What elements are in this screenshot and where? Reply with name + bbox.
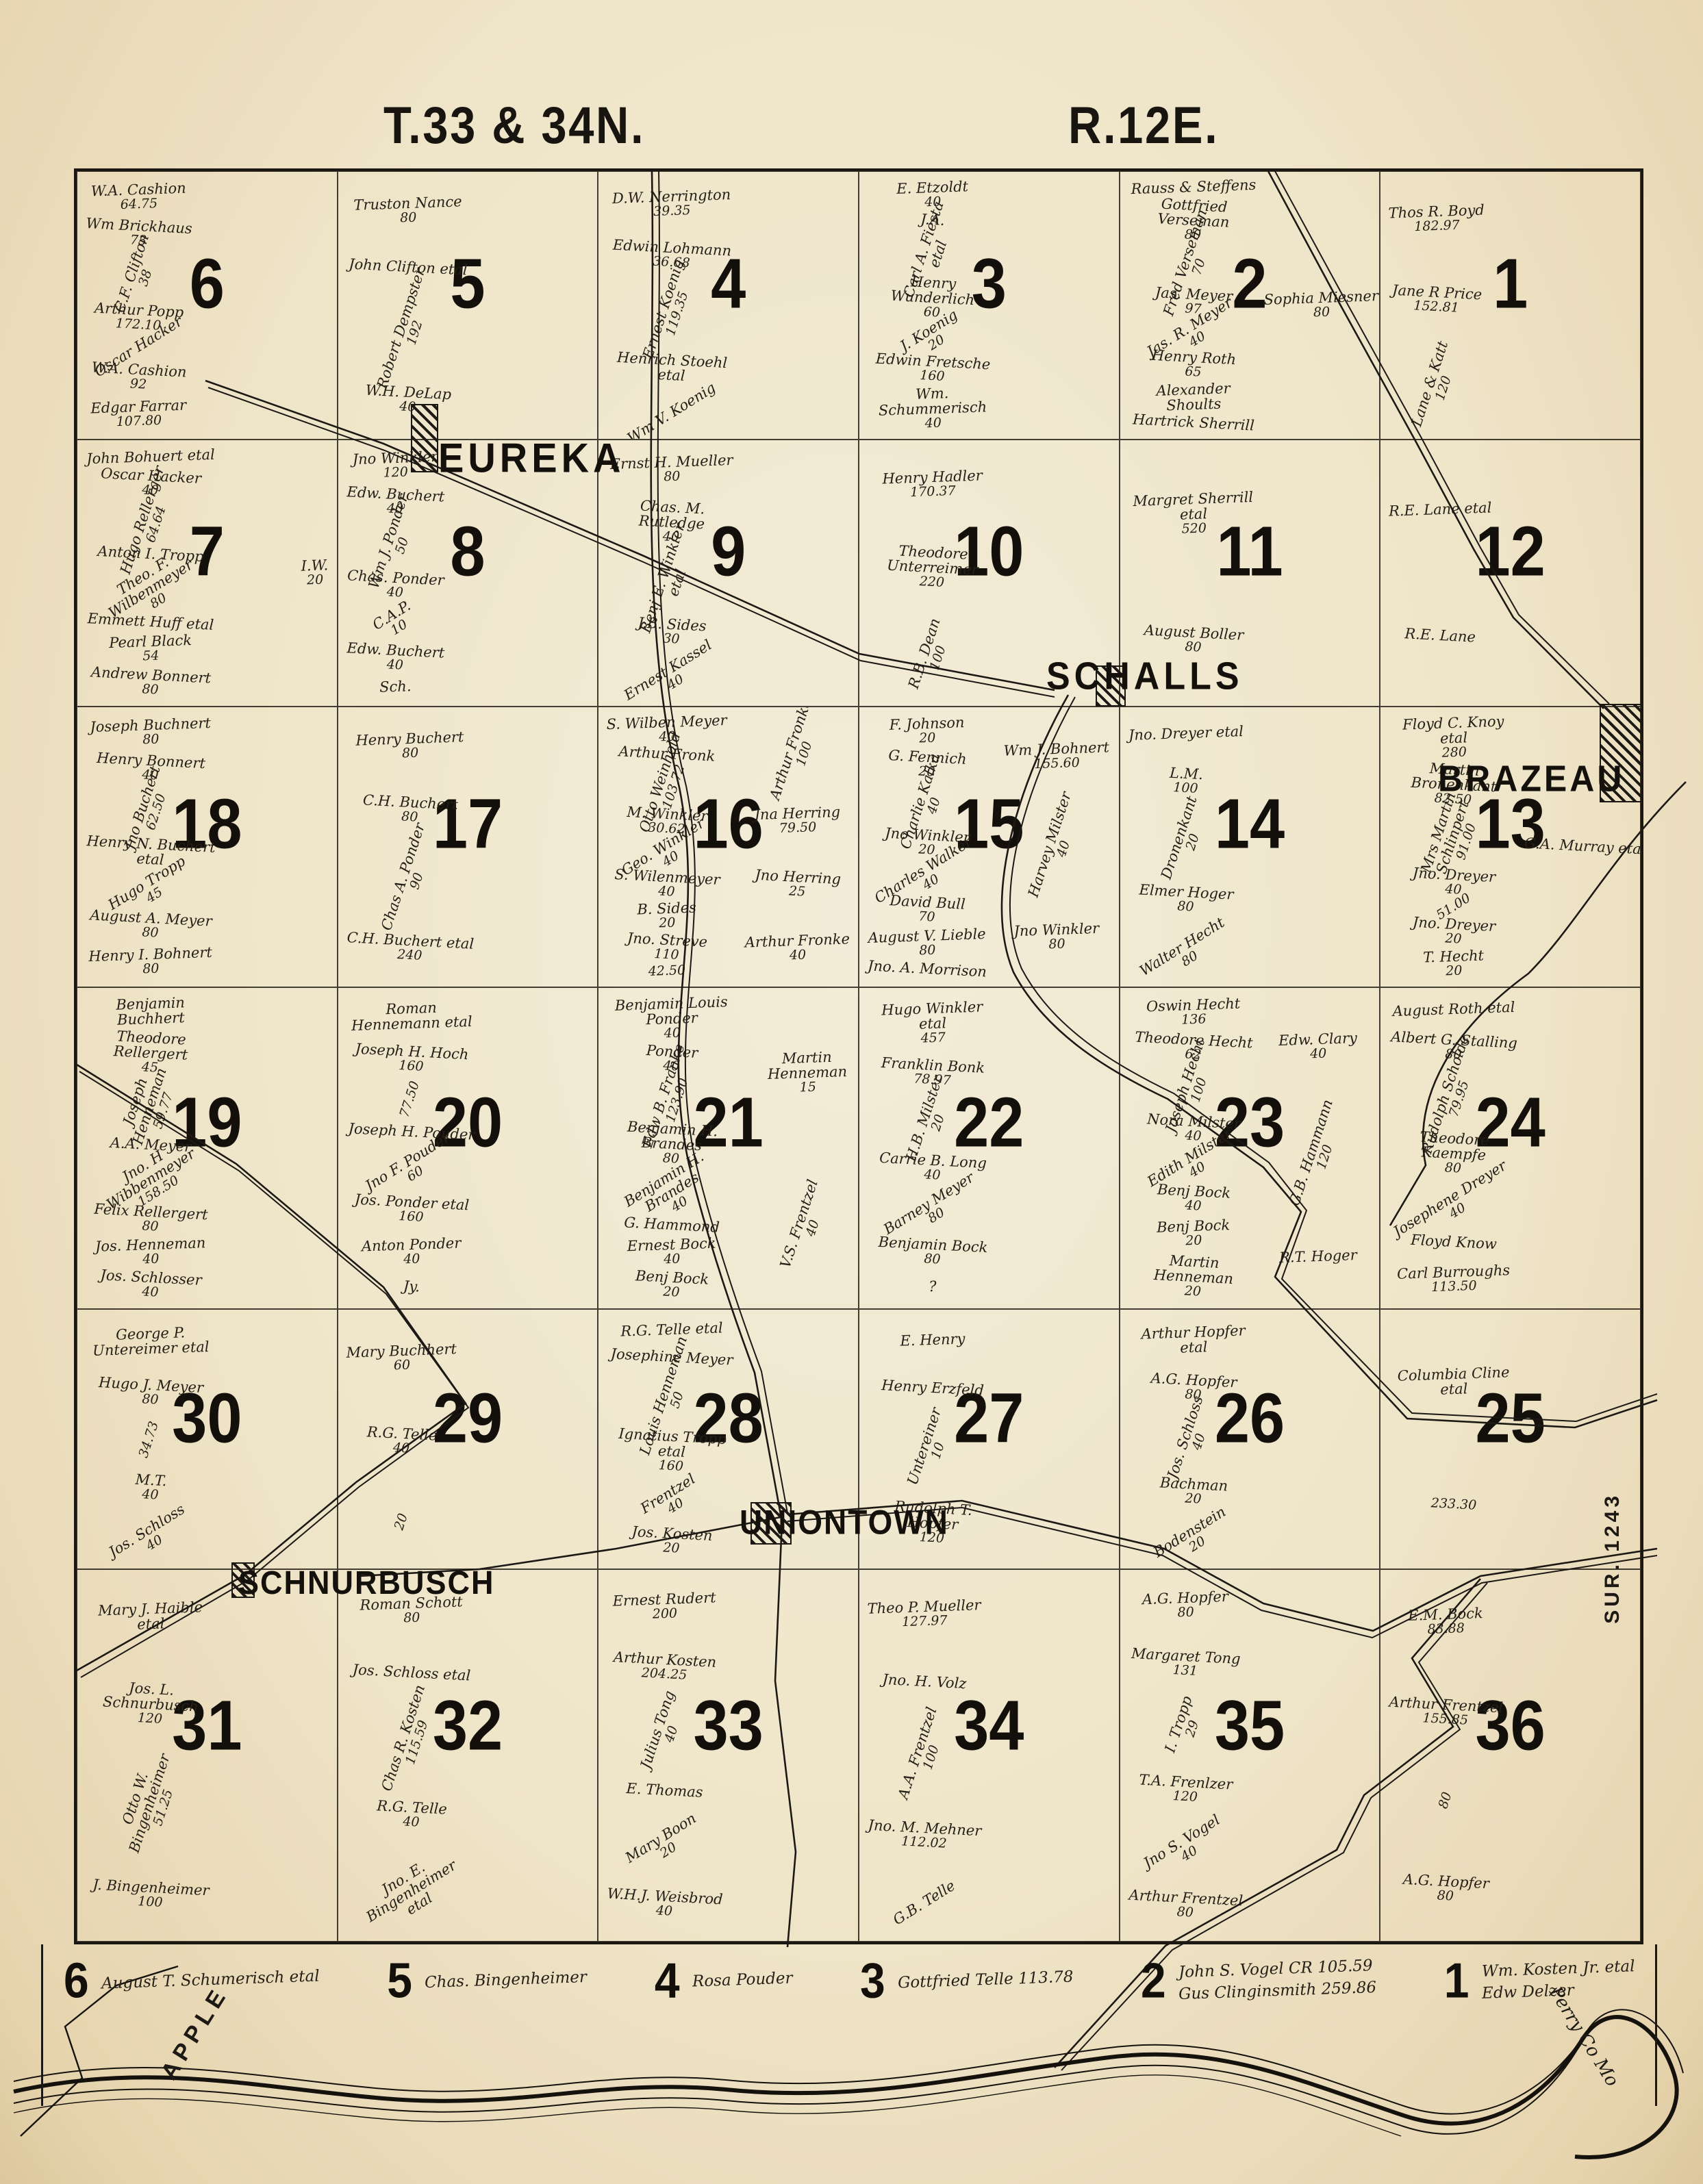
parcel-owner: Margret Sherrill etal: [1133, 489, 1253, 523]
bottom-section-4: 4Rosa Pouder: [655, 1954, 792, 2006]
parcel-label: George P. Untereimer etal: [85, 1325, 216, 1359]
parcel-label: D.W. Nerrington39.35: [607, 188, 737, 220]
parcel-label: Jos. Schloss40: [88, 1490, 213, 1569]
section-cell-31: 31Mary J. Haible etalJos. L. Schnurbusch…: [77, 1569, 338, 1942]
parcel-list: Benjamin BuchhertTheodore Rellergert45Jo…: [77, 988, 337, 1308]
parcel-acres: 110: [606, 945, 727, 965]
bottom-strip: 6August T. Schumerisch etal5Chas. Bingen…: [41, 1944, 1657, 2106]
parcel-list: R.E. Lane etalR.E. Lane: [1380, 440, 1640, 706]
parcel-label: W.A. Cashion92: [85, 360, 192, 394]
section-cell-19: 19Benjamin BuchhertTheodore Rellergert45…: [77, 987, 338, 1309]
parcel-owner: John Clifton etal: [348, 256, 467, 279]
parcel-owner: Jno. H. Volz: [882, 1671, 967, 1692]
parcel-label: Untereiner10: [898, 1382, 965, 1515]
section-cell-24: 24August Roth etalAlbert G. Stalling80Ru…: [1380, 987, 1641, 1309]
parcel-label: 20: [377, 1466, 425, 1569]
section-cell-9: 9Ernst H. Mueller80Chas. M. Rutledge40Be…: [598, 440, 859, 707]
parcel-label: Columbia Cline etal: [1389, 1364, 1519, 1399]
town-label-brazeau: BRAZEAU: [1438, 757, 1624, 800]
bottom-section-number: 3: [860, 1951, 885, 2009]
parcel-label: C.H. Buchert etal240: [346, 930, 475, 965]
parcel-acres: 20: [377, 1466, 425, 1569]
parcel-list: Jno. Dreyer etalL.M.100Dronenkant20Elmer…: [1120, 707, 1380, 987]
parcel-owner: R.T. Hoger: [1278, 1247, 1357, 1266]
parcel-acres: 83.88: [1389, 1621, 1503, 1638]
parcel-owner: Ignatius Tropp etal: [618, 1425, 727, 1460]
parcel-list: Rauss & SteffensGottfried Verseman80Fred…: [1120, 172, 1380, 439]
bottom-name-list: John S. Vogel CR 105.59Gus Clinginsmith …: [1178, 1960, 1376, 2000]
parcel-label: G.B. Hammann120: [1287, 1098, 1349, 1212]
bottom-parcel-label: Chas. Bingenheimer: [425, 1968, 588, 1992]
parcel-list: John Bohuert etalOscar Hacker40Hugo Rell…: [77, 440, 337, 706]
section-cell-2: 2Rauss & SteffensGottfried Verseman80Fre…: [1120, 171, 1380, 440]
parcel-owner: M.T.: [135, 1471, 167, 1488]
parcel-label: Jna Herring79.50: [744, 804, 850, 837]
bottom-section-number: 6: [64, 1951, 89, 2009]
bottom-parcel-label: Gottfried Telle 113.78: [897, 1968, 1073, 1992]
parcel-label: August Roth etal: [1389, 1000, 1519, 1019]
parcel-label: Jos. Ponder etal160: [346, 1192, 477, 1227]
parcel-list: Truston Nance80John Clifton etalRobert D…: [338, 172, 598, 439]
parcel-list: Mary J. Haible etalJos. L. Schnurbusch12…: [77, 1570, 337, 1941]
parcel-label: Jno. Streve110: [606, 930, 728, 965]
sections-grid: 6W.A. Cashion64.75Wm Brickhaus73C.F. Cli…: [77, 171, 1641, 1942]
section-cell-18: 18Joseph Buchnert80Henry Bonnert40Jno Bu…: [77, 707, 338, 987]
parcel-label: G.B. Telle: [872, 1867, 976, 1940]
parcel-label: Jane R Price152.81: [1388, 283, 1485, 317]
parcel-label: Hugo Winkler etal457: [867, 1000, 998, 1047]
section-cell-12: 12R.E. Lane etalR.E. Lane: [1380, 440, 1641, 707]
bottom-parcel-label: John S. Vogel CR 105.59: [1178, 1957, 1376, 1981]
section-cell-35: 35A.G. Hopfer80Margaret Tong131I. Tropp2…: [1120, 1569, 1380, 1942]
parcel-label: Floyd C. Knoy etal280: [1388, 713, 1519, 761]
parcel-label: Jno. Dreyer etal: [1128, 724, 1244, 744]
parcel-label: August A. Meyer80: [85, 908, 216, 943]
parcel-label: V.S. Frentzel40: [772, 1160, 840, 1293]
section-cell-33: 33Ernest Rudert200Arthur Kosten204.25Jul…: [598, 1569, 859, 1942]
parcel-label: E.M. Bock83.88: [1389, 1605, 1504, 1638]
town-label-uniontown: UNIONTOWN: [740, 1502, 949, 1542]
parcel-acres: 65: [1128, 362, 1259, 383]
parcel-owner: G.A. Murray etal: [1524, 835, 1641, 857]
parcel-list: George P. Untereimer etalHugo J. Meyer80…: [77, 1310, 337, 1569]
section-cell-26: 26Arthur Hopfer etalA.G. Hopfer80Jos. Sc…: [1120, 1309, 1380, 1569]
parcel-acres: 40: [607, 1250, 737, 1268]
parcel-label: Carl Burroughs113.50: [1389, 1263, 1519, 1296]
parcel-owner: Jno. E. Bingenheimer etal: [363, 1857, 459, 1925]
parcel-label: I. Tropp29: [1154, 1666, 1217, 1786]
parcel-owner: Roman Hennemann etal: [351, 1000, 472, 1034]
bottom-section-5: 5Chas. Bingenheimer: [387, 1954, 587, 2006]
parcel-owner: Benjamin Buchhert: [116, 994, 185, 1028]
parcel-label: Benj Bock40: [1128, 1181, 1259, 1216]
section-cell-32: 32Roman Schott80Jos. Schloss etalChas R.…: [338, 1569, 598, 1942]
parcel-owner: Alexander Shoults: [1156, 380, 1231, 414]
parcel-label: David Bull70: [867, 892, 987, 927]
bottom-section-number: 2: [1141, 1951, 1166, 2009]
parcel-list: Thos R. Boyd182.97Jane R Price152.81Lane…: [1380, 172, 1640, 439]
parcel-list: A.G. Hopfer80Margaret Tong131I. Tropp29T…: [1120, 1570, 1380, 1941]
bottom-name-list: Chas. Bingenheimer: [425, 1971, 587, 1989]
parcel-owner: Jos. Schloss etal: [352, 1661, 471, 1684]
parcel-acres: 42.50: [607, 963, 728, 980]
bottom-section-number: 4: [655, 1951, 680, 2009]
parcel-list: W.A. Cashion64.75Wm Brickhaus73C.F. Clif…: [77, 172, 337, 439]
parcel-label: W.H. DeLap40: [346, 383, 470, 418]
parcel-owner: Theodore Kaempfe: [1420, 1129, 1489, 1164]
parcel-label: B. Sides20: [607, 900, 728, 932]
parcel-owner: Mary J. Haible etal: [98, 1599, 203, 1632]
parcel-label: Jno. A. Morrison: [868, 959, 987, 980]
map-frame: 6W.A. Cashion64.75Wm Brickhaus73C.F. Cli…: [74, 168, 1643, 1944]
parcel-label: Harvey Milster40: [1026, 790, 1087, 903]
parcel-acres: 70: [867, 907, 987, 927]
parcel-acres: 20: [1388, 929, 1519, 950]
section-cell-14: 14Jno. Dreyer etalL.M.100Dronenkant20Elm…: [1120, 707, 1380, 987]
parcel-owner: Benjamin Louis Ponder: [615, 993, 729, 1028]
parcel-label: C.H. Buchert80: [346, 792, 475, 827]
parcel-label: Rauss & Steffens: [1128, 178, 1259, 197]
parcel-label: R.B. Dean100: [898, 589, 965, 707]
parcel-owner: R.G. Telle etal: [620, 1320, 723, 1340]
parcel-list: Arthur Hopfer etalA.G. Hopfer80Jos. Schl…: [1120, 1310, 1380, 1569]
parcel-acres: 20: [868, 729, 987, 747]
parcel-label: Jos. L. Schnurbusch120: [84, 1679, 216, 1729]
parcel-label: Hugo J. Meyer80: [85, 1375, 216, 1410]
parcel-list: E. Etzoldt40J.A.Carl A. Fiesta etalHenry…: [859, 172, 1119, 439]
parcel-label: Theodore Unterreimer220: [866, 542, 998, 592]
parcel-acres: 20: [606, 1538, 737, 1559]
parcel-label: Jno. E. Bingenheimer etal: [344, 1838, 479, 1942]
parcel-acres: 20: [1128, 1232, 1259, 1250]
title-township: T.33 & 34N.: [383, 96, 645, 155]
parcel-label: I.W.20: [301, 559, 329, 588]
section-cell-22: 22Hugo Winkler etal457Franklin Bonk78.97…: [859, 987, 1120, 1309]
bottom-section-2: 2John S. Vogel CR 105.59Gus Clinginsmith…: [1141, 1954, 1376, 2006]
town-label-schnurbusch: SCHNURBUSCH: [238, 1564, 495, 1602]
bottom-section-3: 3Gottfried Telle 113.78: [860, 1954, 1073, 2006]
parcel-label: Pearl Black54: [85, 633, 216, 665]
section-cell-20: 20Roman Hennemann etalJoseph H. Hoch1607…: [338, 987, 598, 1309]
parcel-owner: Wm. Schummerisch: [878, 385, 987, 418]
parcel-acres: 20: [1389, 962, 1519, 980]
parcel-label: Ernest Bock40: [607, 1235, 737, 1268]
parcel-label: W.A. Cashion64.75: [85, 181, 192, 213]
parcel-label: T. Hecht20: [1389, 947, 1519, 980]
parcel-label: Benjamin Buchhert: [85, 995, 216, 1029]
parcel-owner: R.E. Lane etal: [1389, 499, 1492, 519]
title-range: R.12E.: [1068, 96, 1219, 155]
parcel-label: Truston Nance80: [346, 194, 470, 227]
parcel-label: A.G. Hopfer80: [1128, 1589, 1243, 1621]
parcel-label: Mary J. Haible etal: [85, 1599, 216, 1634]
parcel-owner: Jno. Dreyer etal: [1128, 723, 1244, 744]
parcel-label: Arthur Frentzel155.85: [1388, 1695, 1504, 1729]
parcel-owner: Hartrick Sherrill: [1132, 411, 1254, 433]
parcel-acres: 20: [1139, 1505, 1257, 1569]
parcel-label: W.H.J. Weisbrod40: [606, 1887, 723, 1921]
parcel-label: August Boller80: [1128, 622, 1259, 657]
parcel-label: R.G. Telle40: [346, 1797, 477, 1832]
parcel-list: Ernst H. Mueller80Chas. M. Rutledge40Ben…: [598, 440, 858, 706]
parcel-label: Jos. Schloss etal: [346, 1662, 477, 1684]
parcel-list: Roman Schott80Jos. Schloss etalChas R. K…: [338, 1570, 598, 1941]
parcel-owner: Floyd Know: [1411, 1231, 1498, 1252]
parcel-label: Jno Winkler80: [1003, 921, 1111, 953]
bottom-parcel-label: Gus Clinginsmith 259.86: [1178, 1979, 1376, 2003]
plat-map-page: { "title": { "township": "T.33 & 34N.", …: [0, 0, 1703, 2184]
section-cell-30: 30George P. Untereimer etalHugo J. Meyer…: [77, 1309, 338, 1569]
parcel-acres: 40: [346, 1439, 457, 1458]
parcel-label: R.G. Telle40: [346, 1424, 457, 1458]
town-block-eureka: [411, 404, 438, 472]
parcel-acres: 20: [606, 1282, 737, 1303]
survey-1243-label: SUR. 1243: [1601, 1493, 1624, 1624]
parcel-label: Mary Boon20: [608, 1801, 721, 1887]
parcel-label: Jos. Henneman40: [85, 1236, 216, 1269]
parcel-list: Joseph Buchnert80Henry Bonnert40Jno Buch…: [77, 707, 337, 987]
parcel-label: Jno. Dreyer20: [1388, 914, 1519, 949]
parcel-label: Thos R. Boyd182.97: [1389, 203, 1486, 235]
parcel-owner: Jos. L. Schnurbusch: [103, 1679, 199, 1714]
parcel-owner: G.B. Telle: [890, 1877, 958, 1928]
town-label-eureka: EUREKA: [438, 433, 625, 481]
parcel-owner: George P. Untereimer etal: [92, 1325, 210, 1360]
parcel-label: Edw. Clary40: [1263, 1030, 1372, 1063]
parcel-label: Arthur Kosten204.25: [606, 1649, 723, 1684]
parcel-label: Arthur Fronke100: [767, 707, 827, 807]
parcel-owner: ?: [929, 1278, 937, 1295]
parcel-label: Jno Herring25: [744, 867, 850, 902]
parcel-label: E. Thomas: [607, 1780, 723, 1801]
section-cell-34: 34Theo P. Mueller127.97Jno. H. VolzA.A. …: [859, 1569, 1120, 1942]
parcel-label: Jno. M. Mehner112.02: [867, 1818, 982, 1853]
parcel-label: 233.30: [1389, 1495, 1519, 1515]
parcel-acres: 15: [743, 1078, 859, 1096]
parcel-label: G.A. Murray etal: [1524, 836, 1641, 857]
parcel-label: Joseph Buchnert80: [85, 715, 216, 748]
parcel-label: Andrew Bonnert80: [85, 665, 216, 700]
parcel-label: Mary Buchhert60: [346, 1342, 457, 1374]
parcel-acres: 40: [1128, 1196, 1259, 1217]
parcel-label: Henry Hadler170.37: [867, 468, 998, 501]
parcel-label: John Bohuert etal: [86, 447, 216, 466]
bottom-section-number: 1: [1444, 1951, 1469, 2009]
parcel-label: Sophia Miesner80: [1263, 289, 1379, 321]
parcel-owner: Floyd C. Knoy etal: [1402, 713, 1504, 746]
parcel-list: Roman Hennemann etalJoseph H. Hoch16077.…: [338, 988, 598, 1308]
parcel-list: Benjamin Louis Ponder40Ponder40Edw B. Fr…: [598, 988, 858, 1308]
bottom-section-1: 1Wm. Kosten Jr. etalEdw Delzer: [1444, 1954, 1635, 2006]
section-cell-6: 6W.A. Cashion64.75Wm Brickhaus73C.F. Cli…: [77, 171, 338, 440]
parcel-label: Benjamin Bock80: [867, 1234, 998, 1269]
parcel-owner: Theodore Unterreimer: [887, 543, 979, 579]
parcel-label: Jno. H. Volz: [868, 1672, 982, 1692]
parcel-acres: 40: [346, 1812, 477, 1833]
bottom-parcel-label: Rosa Pouder: [692, 1969, 792, 1990]
parcel-label: Jno S. Vogel40: [1129, 1805, 1241, 1890]
parcel-label: S. Wilenmeyer40: [606, 867, 728, 902]
parcel-label: Ernst H. Mueller80: [607, 453, 737, 486]
parcel-label: Benjamin Louis Ponder40: [606, 995, 737, 1043]
section-cell-36: 36E.M. Bock83.88Arthur Frentzel155.8580A…: [1380, 1569, 1641, 1942]
parcel-label: J. Bingenheimer100: [85, 1877, 216, 1912]
parcel-list: S. Wilben Meyer40Arthur FronkOtto Weinho…: [598, 707, 858, 987]
parcel-acres: 457: [868, 1029, 998, 1047]
section-cell-1: 1Thos R. Boyd182.97Jane R Price152.81Lan…: [1380, 171, 1641, 440]
parcel-label: A.A. Frentzel100: [893, 1696, 956, 1815]
parcel-owner: Sch.: [379, 678, 411, 696]
parcel-label: R.E. Lane etal: [1389, 500, 1492, 519]
parcel-owner: Jy.: [403, 1278, 420, 1295]
parcel-label: 42.50: [607, 963, 728, 980]
parcel-list: Theo P. Mueller127.97Jno. H. VolzA.A. Fr…: [859, 1570, 1119, 1941]
parcel-label: Jos. Schlosser40: [85, 1267, 216, 1302]
parcel-acres: 520: [1128, 520, 1259, 537]
parcel-label: Margret Sherrill etal520: [1128, 490, 1259, 537]
bottom-section-6: 6August T. Schumerisch etal: [64, 1954, 319, 2006]
parcel-label: August V. Lieble80: [867, 926, 987, 959]
parcel-label: Walter Hecht80: [1129, 911, 1241, 987]
parcel-label: Anton Ponder40: [346, 1236, 477, 1269]
parcel-label: Edgar Farrar107.80: [85, 398, 192, 430]
parcel-acres: 20: [607, 915, 728, 932]
town-label-schalls: SCHALLS: [1046, 655, 1244, 699]
parcel-list: Mary Buchhert60R.G. Telle4020: [338, 1310, 598, 1569]
parcel-list: E.M. Bock83.88Arthur Frentzel155.8580A.G…: [1380, 1570, 1640, 1941]
bottom-parcel-label: Wm. Kosten Jr. etal: [1481, 1957, 1635, 1981]
parcel-label: Chas A. Ponder90: [376, 813, 443, 945]
parcel-acres: 40: [607, 1025, 738, 1043]
parcel-owner: Columbia Cline etal: [1398, 1364, 1510, 1397]
parcel-label: 80: [1422, 1743, 1471, 1858]
section-cell-3: 3E. Etzoldt40J.A.Carl A. Fiesta etalHenr…: [859, 171, 1120, 440]
parcel-label: Wm. Schummerisch40: [867, 385, 998, 433]
parcel-label: Oswin Hecht136: [1128, 996, 1259, 1029]
parcel-acres: 80: [1422, 1743, 1471, 1858]
parcel-owner: R.E. Lane: [1404, 625, 1476, 645]
parcel-owner: Wm V. Koenig: [625, 379, 718, 440]
parcel-label: Benj Bock20: [606, 1267, 737, 1302]
parcel-owner: Martin Henneman: [768, 1049, 848, 1082]
parcel-owner: Rauss & Steffens: [1131, 177, 1257, 197]
parcel-label: Hartrick Sherrill: [1128, 412, 1259, 434]
parcel-label: Jy.: [346, 1276, 477, 1298]
parcel-label: Edw. Buchert40: [346, 642, 445, 675]
parcel-label: T.A. Frenlzer120: [1128, 1773, 1244, 1807]
parcel-label: Arthur Hopfer etal: [1128, 1323, 1259, 1358]
parcel-list: D.W. Nerrington39.35Edwin Lohmann36.68Er…: [598, 172, 858, 439]
section-cell-4: 4D.W. Nerrington39.35Edwin Lohmann36.68E…: [598, 171, 859, 440]
parcel-label: F. Johnson20: [867, 715, 987, 748]
parcel-label: R.T. Hoger: [1263, 1247, 1372, 1266]
parcel-label: Henry I. Bohnert80: [85, 945, 216, 978]
parcel-label: Alexander Shoults: [1128, 380, 1259, 414]
parcel-list: Hugo Winkler etal457Franklin Bonk78.97H.…: [859, 988, 1119, 1308]
bottom-name-list: Gottfried Telle 113.78: [898, 1971, 1074, 1989]
parcel-list: Ernest Rudert200Arthur Kosten204.25Juliu…: [598, 1570, 858, 1941]
parcel-owner: Jno. A. Morrison: [868, 958, 987, 980]
section-cell-17: 17Henry Buchert80C.H. Buchert80Chas A. P…: [338, 707, 598, 987]
parcel-label: Arthur Fronke40: [744, 932, 850, 964]
parcel-owner: E. Thomas: [626, 1780, 703, 1801]
parcel-owner: August Roth etal: [1393, 999, 1515, 1019]
parcel-label: R.E. Lane: [1389, 626, 1492, 646]
parcel-label: Roman Hennemann etal: [346, 1000, 477, 1034]
parcel-label: Arthur Frentzel80: [1128, 1888, 1244, 1922]
parcel-owner: Martin Henneman: [1153, 1252, 1233, 1287]
bottom-name-list: Rosa Pouder: [692, 1971, 793, 1989]
section-cell-5: 5Truston Nance80John Clifton etalRobert …: [338, 171, 598, 440]
parcel-list: August Roth etalAlbert G. Stalling80Rudo…: [1380, 988, 1640, 1308]
parcel-label: Martin Henneman15: [742, 1048, 859, 1096]
parcel-list: F. Johnson20G. Fennich20Charlie Kalka40J…: [859, 707, 1119, 987]
parcel-owner: Hugo Winkler etal: [881, 998, 983, 1032]
parcel-label: Chas R. Kosten115.59: [377, 1674, 444, 1807]
parcel-label: John Clifton etal: [346, 257, 470, 279]
parcel-acres: 54: [86, 648, 216, 665]
parcel-list: Oswin Hecht136Theodore Hecht62Joseph Hec…: [1120, 988, 1380, 1308]
parcel-label: Henry Buchert80: [346, 729, 474, 762]
parcel-acres: 20: [1127, 1281, 1258, 1301]
parcel-label: Benj Bock20: [1128, 1217, 1259, 1250]
section-cell-7: 7John Bohuert etalOscar Hacker40Hugo Rel…: [77, 440, 338, 707]
parcel-label: R.G. Telle etal: [607, 1321, 737, 1340]
parcel-label: Julius Tong40: [633, 1671, 696, 1792]
parcel-label: E. Henry: [868, 1331, 998, 1350]
parcel-label: ?: [868, 1278, 998, 1297]
parcel-label: Martin Henneman20: [1127, 1252, 1259, 1301]
section-cell-15: 15F. Johnson20G. Fennich20Charlie Kalka4…: [859, 707, 1120, 987]
parcel-owner: Arthur Hopfer etal: [1141, 1323, 1246, 1356]
parcel-label: Jos. Kosten20: [606, 1523, 737, 1558]
parcel-label: Wm J. Bohnert155.60: [1003, 740, 1111, 772]
section-cell-21: 21Benjamin Louis Ponder40Ponder40Edw B. …: [598, 987, 859, 1309]
parcel-label: Felix Rellergert80: [85, 1202, 216, 1236]
parcel-label: A.G. Hopfer80: [1388, 1872, 1504, 1906]
parcel-label: Theo P. Mueller127.97: [867, 1598, 981, 1630]
section-cell-29: 29Mary Buchhert60R.G. Telle4020: [338, 1309, 598, 1569]
parcel-owner: John Bohuert etal: [86, 446, 215, 467]
parcel-label: Sch.: [346, 678, 444, 697]
parcel-acres: 233.30: [1389, 1495, 1519, 1515]
parcel-label: Ernest Rudert200: [607, 1590, 723, 1623]
section-cell-23: 23Oswin Hecht136Theodore Hecht62Joseph H…: [1120, 987, 1380, 1309]
parcel-list: Henry Buchert80C.H. Buchert80Chas A. Pon…: [338, 707, 598, 987]
parcel-label: Otto W. Bingenheimer51.25: [108, 1734, 190, 1871]
bottom-section-number: 5: [387, 1951, 412, 2009]
parcel-owner: E. Henry: [900, 1331, 966, 1349]
parcel-label: Lane & Katt120: [1408, 335, 1465, 437]
parcel-label: Margaret Tong131: [1128, 1646, 1244, 1680]
parcel-label: Robert Dempster192: [375, 266, 440, 395]
parcel-acres: 20: [301, 573, 329, 587]
section-cell-16: 16S. Wilben Meyer40Arthur FronkOtto Wein…: [598, 707, 859, 987]
